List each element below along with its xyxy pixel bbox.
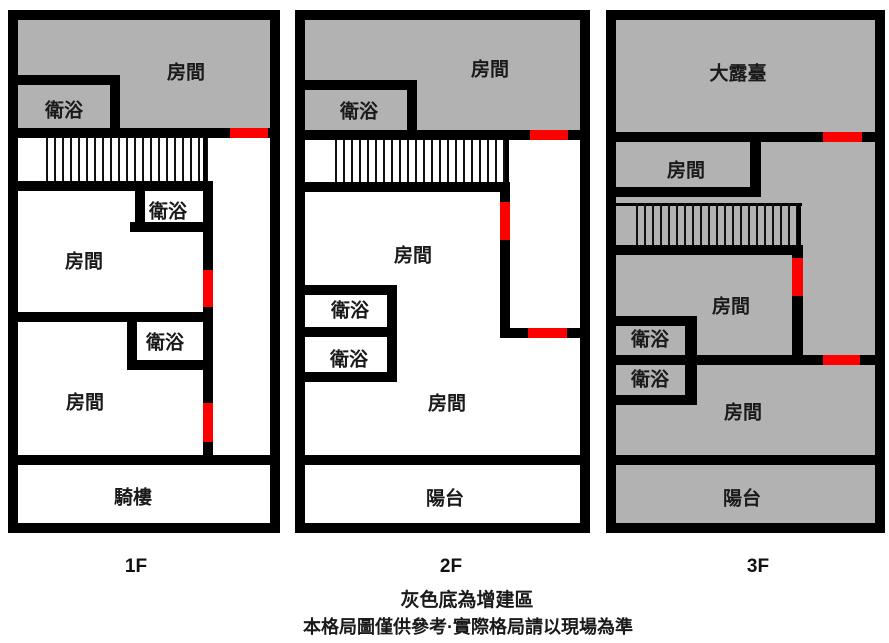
wall: [616, 187, 761, 197]
room-label: 房間: [712, 292, 750, 319]
floorplan-3f: 大露臺 房間 房間 衛浴 衛浴 房間 陽台: [606, 10, 885, 533]
door-marker: [230, 128, 268, 138]
disclaimer-note: 本格局圖僅供參考·實際格局請以現場為準: [303, 613, 633, 639]
room-label: 房間: [471, 55, 509, 82]
stairs-edge: [505, 140, 509, 182]
wall: [305, 182, 510, 192]
floor-caption-1f: 1F: [125, 556, 147, 578]
door-marker: [530, 130, 568, 140]
bath-label: 衛浴: [340, 97, 378, 124]
terrace-label: 大露臺: [709, 59, 766, 86]
wall: [616, 455, 875, 465]
bath-label: 衛浴: [331, 296, 369, 323]
wall: [305, 285, 397, 295]
bath-label: 衛浴: [330, 345, 368, 372]
bath-label: 衛浴: [146, 328, 184, 355]
stairs-edge: [203, 138, 207, 181]
balcony-label: 陽台: [426, 484, 464, 511]
bath-label: 衛浴: [631, 325, 669, 352]
room-label: 房間: [394, 241, 432, 268]
door-marker: [823, 355, 860, 365]
floor-caption-3f: 3F: [747, 556, 769, 578]
door-marker: [792, 258, 803, 296]
floorplan-page: { "colors": { "wall_black": "#000000", "…: [0, 0, 889, 643]
door-marker: [528, 328, 567, 338]
stairs: [636, 203, 797, 245]
wall: [18, 455, 270, 465]
arcade-label: 騎樓: [114, 483, 152, 510]
wall: [305, 455, 580, 465]
room-label: 房間: [167, 58, 205, 85]
floorplan-2f: 房間 衛浴 房間 衛浴 衛浴 房間 陽台: [295, 10, 590, 533]
bath-label: 衛浴: [45, 96, 83, 123]
wall: [616, 395, 697, 405]
wall: [18, 181, 213, 191]
door-marker: [823, 132, 862, 142]
floorplan-1f: 房間 衛浴 衛浴 房間 衛浴 房間 騎樓: [8, 10, 280, 533]
wall: [305, 372, 397, 382]
door-marker: [203, 403, 213, 442]
stairs: [335, 140, 507, 182]
wall: [616, 245, 803, 255]
wall: [127, 360, 213, 370]
legend-note: 灰色底為增建區: [400, 585, 533, 612]
room-label: 房間: [724, 398, 762, 425]
wall: [305, 327, 397, 337]
stairs: [46, 138, 208, 181]
wall: [18, 312, 213, 322]
wall: [130, 222, 213, 232]
door-marker: [500, 202, 510, 240]
stairs-edge: [797, 203, 801, 245]
room-label: 房間: [428, 389, 466, 416]
room-label: 房間: [66, 388, 104, 415]
wall: [305, 80, 417, 90]
wall: [18, 75, 120, 85]
room-label: 房間: [65, 247, 103, 274]
door-marker: [203, 270, 213, 307]
balcony-label: 陽台: [723, 484, 761, 511]
bath-label: 衛浴: [631, 365, 669, 392]
bath-label: 衛浴: [149, 197, 187, 224]
room-label: 房間: [667, 156, 705, 183]
floor-caption-2f: 2F: [440, 556, 462, 578]
